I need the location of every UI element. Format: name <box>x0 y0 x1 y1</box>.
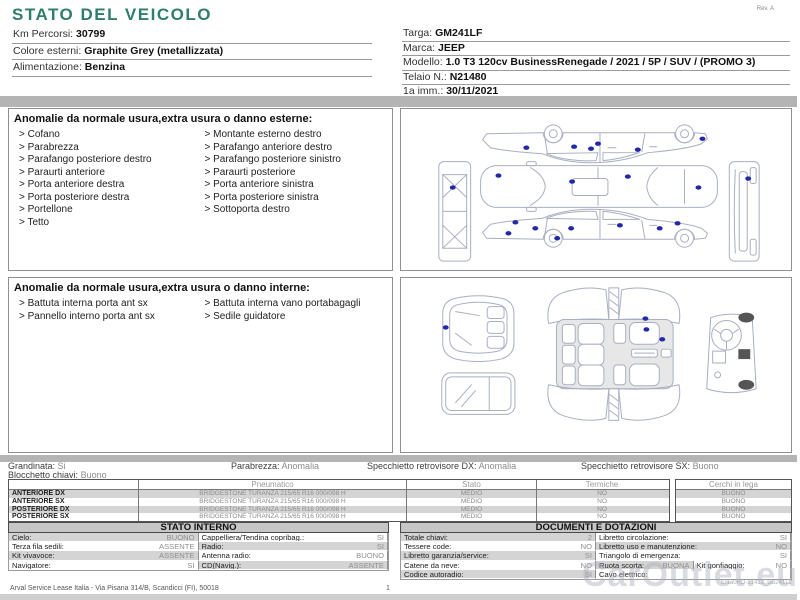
summary-line: Grandinata: SiParabrezza: AnomaliaSpecch… <box>8 462 794 471</box>
tyre-row: POSTERIORE SX BRIDGESTONE TURANZA 215/65… <box>9 513 669 521</box>
field-label: Cielo: <box>12 533 167 541</box>
table-header-cell: Pneumatico <box>139 480 407 489</box>
info-label: Colore esterni: <box>13 45 81 57</box>
info-row: Alimentazione: Benzina <box>12 60 372 77</box>
tyre-state: MEDIO <box>407 513 537 521</box>
tyre-position: ANTERIORE SX <box>9 498 139 506</box>
field-cell: Libretto garanzia/service:SI <box>401 551 596 560</box>
summary-value: Anomalia <box>282 461 320 471</box>
anomaly-item: Porta anteriore destra <box>19 179 199 192</box>
field-value: ASSENTE <box>159 551 194 559</box>
field-label: Totale chiavi: <box>404 533 588 541</box>
field-value: ASSENTE <box>349 561 384 569</box>
interior-anomalies-panel: Anomalie da normale usura,extra usura o … <box>8 277 393 453</box>
field-value: 2 <box>588 533 592 541</box>
field-cell: Kit vivavoce:ASSENTE <box>9 551 199 560</box>
footer-page-number: 1 <box>386 585 390 592</box>
page-title: STATO DEL VEICOLO <box>12 5 212 25</box>
field-cell: Totale chiavi:2 <box>401 533 596 542</box>
field-cell: Cappelliera/Tendina copribag.:SI <box>199 533 389 542</box>
field-label: Radio: <box>202 542 377 550</box>
cerchi-state: BUONO <box>676 506 791 514</box>
summary-block: Grandinata: SiParabrezza: AnomaliaSpecch… <box>8 462 794 479</box>
summary-item: Specchietto retrovisore SX: Buono <box>581 462 719 471</box>
field-cell: Terza fila sedili:ASSENTE <box>9 542 199 551</box>
tyre-position: ANTERIORE DX <box>9 490 139 498</box>
field-label: Antenna radio: <box>202 551 357 559</box>
field-label: Kit vivavoce: <box>12 551 159 559</box>
anomaly-column: Montante esterno destroParafango anterio… <box>205 129 391 229</box>
summary-value: Buono <box>81 470 107 480</box>
info-label: Modello: <box>403 56 443 68</box>
field-label: CD(Navig.): <box>202 561 349 569</box>
cerchi-table-body: BUONO BUONO BUONO BUONO <box>676 490 791 521</box>
vehicle-info-left: Km Percorsi: 30799 Colore esterni: Graph… <box>12 27 372 77</box>
field-label: Navigatore: <box>12 561 187 569</box>
vehicle-info-right: Targa: GM241LF Marca: JEEP Modello: 1.0 … <box>402 27 790 101</box>
cerchi-row: BUONO <box>676 506 791 514</box>
summary-item: Parabrezza: Anomalia <box>231 462 367 471</box>
trunk-view <box>443 296 514 362</box>
tyres-table-header: Pneumatico Stato Termiche <box>9 480 669 490</box>
anomaly-item: Paraurti anteriore <box>19 167 199 180</box>
tyre-spec: BRIDGESTONE TURANZA 215/65 R16 000/098 H <box>139 490 407 498</box>
separator-bar <box>0 96 797 107</box>
field-value: BUONO <box>167 533 195 541</box>
cerchi-state: BUONO <box>676 513 791 521</box>
field-cell: Cielo:BUONO <box>9 533 199 542</box>
info-label: Targa: <box>403 27 432 39</box>
anomaly-column: CofanoParabrezzaParafango posteriore des… <box>19 129 205 229</box>
anomaly-item: Parabrezza <box>19 142 199 155</box>
field-cell: Libretto circolazione:SI <box>596 533 791 542</box>
anomaly-item: Battuta interna porta ant sx <box>19 298 199 311</box>
anomaly-item: Pannello interno porta ant sx <box>19 311 199 324</box>
anomaly-item: Porta posteriore destra <box>19 192 199 205</box>
anomaly-item: Montante esterno destro <box>205 129 385 142</box>
anomaly-column: Battuta interna porta ant sxPannello int… <box>19 298 205 323</box>
field-value: BUONO <box>356 551 384 559</box>
field-cell: Codice autoradio:SI <box>401 570 596 579</box>
anomaly-item: Parafango anteriore destro <box>205 142 385 155</box>
field-cell: Catene da neve:NO <box>401 561 596 570</box>
tyre-winter: NO <box>537 506 667 514</box>
vehicle-status-report: STATO DEL VEICOLO Rev. A Km Percorsi: 30… <box>0 0 800 600</box>
info-row: Telaio N.: N21480 <box>402 71 790 86</box>
summary-label: Parabrezza: <box>231 461 280 471</box>
table-header-cell: Termiche <box>537 480 667 489</box>
info-label: Alimentazione: <box>13 61 82 73</box>
summary-label: Specchietto retrovisore DX: <box>367 461 477 471</box>
exterior-anomalies-panel: Anomalie da normale usura,extra usura o … <box>8 108 393 271</box>
cerchi-row: BUONO <box>676 490 791 498</box>
info-label: Km Percorsi: <box>13 28 73 40</box>
field-cell: Navigatore:SI <box>9 561 199 570</box>
anomaly-item: Sedile guidatore <box>205 311 385 324</box>
field-cell: Libretto uso e manutenzione:NO <box>596 542 791 551</box>
field-cell: Antenna radio:BUONO <box>199 551 389 560</box>
tyre-row: ANTERIORE SX BRIDGESTONE TURANZA 215/65 … <box>9 498 669 506</box>
summary-label: Specchietto retrovisore SX: <box>581 461 690 471</box>
info-value: 1.0 T3 120cv BusinessRenegade / 2021 / 5… <box>446 56 756 68</box>
revision-label: Rev. A <box>757 6 774 12</box>
info-label: Marca: <box>403 42 435 54</box>
car-top-view <box>481 162 718 212</box>
field-label: Libretto uso e manutenzione: <box>599 542 776 550</box>
field-label: Cappelliera/Tendina copribag.: <box>202 533 377 541</box>
field-label: Libretto garanzia/service: <box>404 551 585 559</box>
info-value: Graphite Grey (metallizzata) <box>84 45 223 57</box>
field-value: NO <box>581 542 592 550</box>
tyre-row: ANTERIORE DX BRIDGESTONE TURANZA 215/65 … <box>9 490 669 498</box>
field-cell: CD(Navig.):ASSENTE <box>199 561 389 570</box>
exterior-damage-dots <box>450 137 751 241</box>
field-value: SI <box>780 533 787 541</box>
anomaly-item: Battuta interna vano portabagagli <box>205 298 385 311</box>
car-rear-view <box>729 162 759 261</box>
summary-value: Buono <box>693 461 719 471</box>
info-row: Modello: 1.0 T3 120cv BusinessRenegade /… <box>402 56 790 71</box>
field-value: NO <box>776 542 787 550</box>
tyres-table-body: ANTERIORE DX BRIDGESTONE TURANZA 215/65 … <box>9 490 669 521</box>
cerchi-table: Cerchi in lega BUONO BUONO BUONO BUONO <box>675 479 792 522</box>
field-value: SI <box>377 542 384 550</box>
tyre-spec: BRIDGESTONE TURANZA 215/65 R16 000/098 H <box>139 506 407 514</box>
panel-title: Anomalie da normale usura,extra usura o … <box>9 109 392 128</box>
table-header-cell <box>9 480 139 489</box>
anomaly-item: Portellone <box>19 204 199 217</box>
field-cell: Radio:SI <box>199 542 389 551</box>
car-front-view <box>439 162 471 261</box>
info-row: Colore esterni: Graphite Grey (metallizz… <box>12 44 372 61</box>
table-header-cell: Stato <box>407 480 537 489</box>
anomaly-item: Sottoporta destro <box>205 204 385 217</box>
cerchi-row: BUONO <box>676 498 791 506</box>
tyre-winter: NO <box>537 498 667 506</box>
anomaly-column: Battuta interna vano portabagagliSedile … <box>205 298 391 323</box>
cerchi-state: BUONO <box>676 490 791 498</box>
tyre-state: MEDIO <box>407 490 537 498</box>
tyre-winter: NO <box>537 490 667 498</box>
interior-diagram-panel <box>400 277 792 453</box>
info-value: Benzina <box>85 61 125 73</box>
field-label: Codice autoradio: <box>404 570 585 578</box>
table-header-cell: Cerchi in lega <box>676 480 791 489</box>
info-label: Telaio N.: <box>403 71 447 83</box>
anomaly-item: Parafango posteriore destro <box>19 154 199 167</box>
anomaly-item: Porta anteriore sinistra <box>205 179 385 192</box>
panel-title: Anomalie da normale usura,extra usura o … <box>9 278 392 297</box>
anomaly-item: Tetto <box>19 217 199 230</box>
tyre-state: MEDIO <box>407 498 537 506</box>
cerchi-row: BUONO <box>676 513 791 521</box>
info-row: Km Percorsi: 30799 <box>12 27 372 44</box>
field-cell: Tessere code:NO <box>401 542 596 551</box>
field-value: SI <box>377 533 384 541</box>
summary-item: Specchietto retrovisore DX: Anomalia <box>367 462 581 471</box>
info-value: JEEP <box>438 42 465 54</box>
footer-company: Arval Service Lease Italia - Via Pisana … <box>10 585 219 592</box>
stato-interno-grid: Cielo:BUONO Cappelliera/Tendina copribag… <box>8 533 389 571</box>
tyre-winter: NO <box>537 513 667 521</box>
info-value: 30799 <box>76 28 105 40</box>
cerchi-table-header: Cerchi in lega <box>676 480 791 490</box>
watermark-id: ID1a0RD-21412_Gb241L2 <box>721 580 792 586</box>
cabin-plan-view <box>548 288 680 420</box>
bottom-strip <box>0 594 797 600</box>
tyre-spec: BRIDGESTONE TURANZA 215/65 R16 000/098 H <box>139 513 407 521</box>
summary-value: Anomalia <box>479 461 517 471</box>
anomaly-item: Porta posteriore sinistra <box>205 192 385 205</box>
field-label: Catene da neve: <box>404 561 581 569</box>
field-label: Libretto circolazione: <box>599 533 780 541</box>
exterior-diagram-panel <box>400 108 792 271</box>
section-header: STATO INTERNO <box>8 522 389 533</box>
tyre-state: MEDIO <box>407 506 537 514</box>
car-interior-diagram <box>401 278 791 452</box>
info-value: GM241LF <box>435 27 482 39</box>
info-row: Targa: GM241LF <box>402 27 790 42</box>
cerchi-state: BUONO <box>676 498 791 506</box>
summary-label: Blocchetto chiavi: <box>8 470 78 480</box>
summary-line: Blocchetto chiavi: Buono <box>8 471 794 480</box>
field-value: SI <box>187 561 194 569</box>
info-value: N21480 <box>450 71 487 83</box>
car-exterior-diagram <box>401 109 791 270</box>
tyre-spec: BRIDGESTONE TURANZA 215/65 R16 000/098 H <box>139 498 407 506</box>
info-row: Marca: JEEP <box>402 42 790 57</box>
field-label: Tessere code: <box>404 542 581 550</box>
summary-item: Blocchetto chiavi: Buono <box>8 471 107 480</box>
rear-window-view <box>442 373 515 415</box>
stato-interno-section: STATO INTERNO Cielo:BUONO Cappelliera/Te… <box>8 522 389 571</box>
tyre-row: POSTERIORE DX BRIDGESTONE TURANZA 215/65… <box>9 506 669 514</box>
tyre-position: POSTERIORE SX <box>9 513 139 521</box>
section-header: DOCUMENTI E DOTAZIONI <box>400 522 792 533</box>
dashboard-view <box>707 313 756 393</box>
field-value: ASSENTE <box>159 542 194 550</box>
anomaly-item: Parafango posteriore sinistro <box>205 154 385 167</box>
watermark: CarOutlet.eu <box>582 556 798 595</box>
tyres-table: Pneumatico Stato Termiche ANTERIORE DX B… <box>8 479 670 522</box>
anomaly-item: Cofano <box>19 129 199 142</box>
anomaly-item: Paraurti posteriore <box>205 167 385 180</box>
tyre-position: POSTERIORE DX <box>9 506 139 514</box>
field-label: Terza fila sedili: <box>12 542 159 550</box>
